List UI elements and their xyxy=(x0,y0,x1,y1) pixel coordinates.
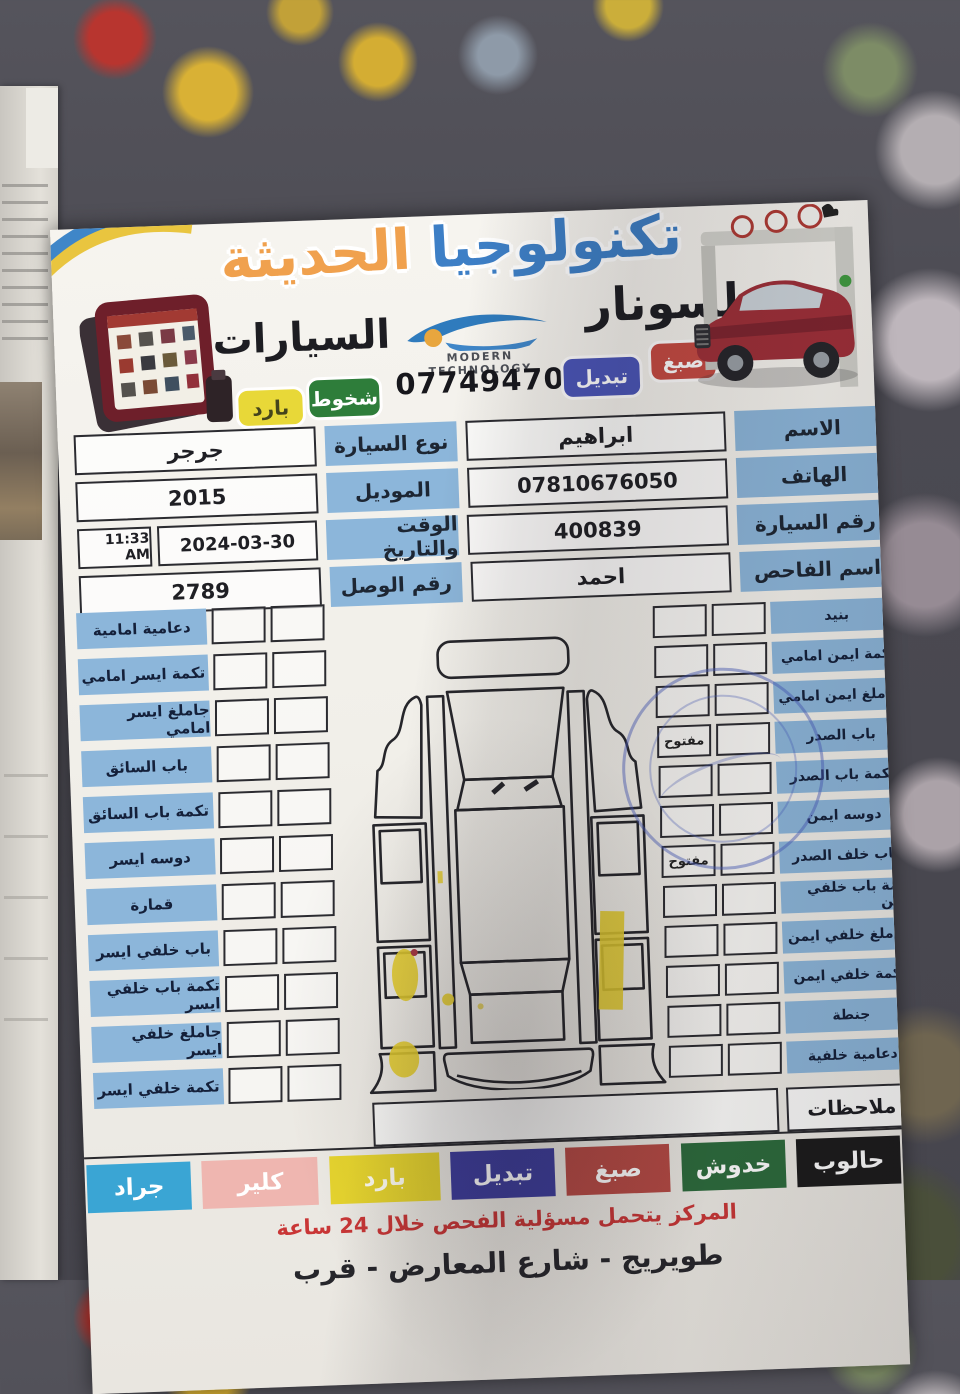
checklist-row: جاملغ خلفي ايمن xyxy=(664,917,910,958)
inspector-label: اسم الفاحص xyxy=(739,546,895,592)
condition-box xyxy=(213,652,267,690)
car-type-label: نوع السيارة xyxy=(325,421,458,466)
condition-box: مفتوح xyxy=(662,844,716,878)
condition-box xyxy=(660,804,714,838)
condition-box xyxy=(282,926,336,964)
condition-box xyxy=(718,762,772,796)
time-value: 11:33 AM xyxy=(77,527,152,570)
condition-box xyxy=(653,604,707,638)
checklist-row: تكمة باب السائق xyxy=(83,788,332,833)
condition-box xyxy=(281,880,335,918)
datetime-values: 2024-03-30 11:33 AM xyxy=(77,520,318,569)
part-name-label: تكمة باب السائق xyxy=(83,792,214,833)
service-badge: تبديل xyxy=(563,357,640,398)
checklist-row: جاملغ ايسر امامي xyxy=(79,696,328,741)
car-swoosh-icon xyxy=(398,303,560,353)
condition-box xyxy=(656,684,710,718)
part-name-label: تكمة باب خلفي ايمن xyxy=(780,877,910,914)
part-name-label: تكمة خلفي ايسر xyxy=(93,1068,224,1109)
checklist-right-column: بنيد تكمة ايمن امامي جاملغ ايمن امامي مف… xyxy=(652,597,910,1078)
condition-box xyxy=(286,1018,340,1056)
part-name-label: قمارة xyxy=(86,884,217,925)
part-name-label: جاملغ خلفي ايمن xyxy=(782,917,910,954)
paper-row-marks xyxy=(4,716,48,1046)
condition-box xyxy=(272,650,326,688)
legend-item: حالوب xyxy=(796,1135,902,1187)
checklist-row: جاملغ ايمن امامي xyxy=(655,677,906,718)
part-name-label: باب السائق xyxy=(81,746,212,787)
part-name-label: جنطة xyxy=(785,997,910,1034)
condition-box xyxy=(719,802,773,836)
checklist-row: دعامية امامية xyxy=(76,604,325,649)
condition-box xyxy=(728,1042,782,1076)
condition-box xyxy=(723,922,777,956)
condition-box xyxy=(222,882,276,920)
condition-box xyxy=(223,928,277,966)
condition-box xyxy=(220,836,274,874)
checklist-row: باب السائق xyxy=(81,742,330,787)
part-name-label: دوسه ايسر xyxy=(84,838,215,879)
condition-box xyxy=(722,882,776,916)
condition-box xyxy=(713,642,767,676)
checklist-row: دوسه ايمن xyxy=(660,797,911,838)
condition-box xyxy=(716,722,770,756)
condition-box xyxy=(664,924,718,958)
part-name-label: تكمة خلفي ايمن xyxy=(783,957,910,994)
notes-label: ملاحظات xyxy=(786,1083,910,1132)
checklist-row: مفتوح باب الصدر xyxy=(657,717,908,758)
date-value: 2024-03-30 xyxy=(157,520,318,566)
model-label: الموديل xyxy=(327,468,460,513)
condition-box xyxy=(666,964,720,998)
disclaimer-text: المركز يتحمل مسؤلية الفحص خلال 24 ساعة xyxy=(262,1199,751,1241)
condition-box xyxy=(663,884,717,918)
checklist-row: تكمة ايمن امامي xyxy=(654,637,905,678)
checklist-row: جاملغ خلفي ايسر xyxy=(91,1018,340,1063)
condition-box xyxy=(228,1066,282,1104)
part-name-label: جاملغ ايسر امامي xyxy=(79,700,210,741)
car-number-value: 400839 xyxy=(466,505,729,555)
condition-box xyxy=(712,602,766,636)
condition-box xyxy=(271,604,325,642)
phone-label: الهاتف xyxy=(736,452,892,498)
car-outline-diagram xyxy=(348,626,672,1095)
condition-box xyxy=(279,834,333,872)
part-name-label: باب الصدر xyxy=(775,717,908,754)
inspection-form-sheet: تكنولوجيا الحديثة لسونار السيارات MODERN… xyxy=(50,200,910,1394)
part-name-label: تكمة ايسر امامي xyxy=(78,655,209,696)
legend-item: جراد xyxy=(86,1161,192,1213)
legend-item: بارد xyxy=(329,1152,441,1204)
name-value: ابراهيم xyxy=(465,411,727,461)
legend-item: صبغ xyxy=(565,1144,671,1196)
checklist-row: دعامية خلفية xyxy=(668,1037,910,1078)
legend-item: تبديل xyxy=(450,1148,556,1200)
part-name-label: دعامية خلفية xyxy=(786,1037,910,1074)
condition-box xyxy=(277,788,331,826)
checklist-row: جنطة xyxy=(667,997,910,1038)
condition-box xyxy=(215,698,269,736)
checklist-left-column: دعامية امامية تكمة ايسر امامي جاملغ ايسر… xyxy=(76,604,342,1109)
notes-value-box xyxy=(372,1088,779,1147)
condition-box xyxy=(284,972,338,1010)
condition-box xyxy=(669,1044,723,1078)
title-word-technology: تكنولوجيا xyxy=(428,203,683,282)
part-name-label: تكمة باب الصدر xyxy=(776,757,909,794)
condition-box xyxy=(715,682,769,716)
legend-item: خدوش xyxy=(681,1140,787,1192)
checklist-row: باب خلفي ايسر xyxy=(88,926,337,971)
part-name-label: دعامية امامية xyxy=(76,609,207,650)
model-value: 2015 xyxy=(75,473,319,522)
service-badge: شخوط xyxy=(309,378,380,418)
condition-box xyxy=(725,962,779,996)
part-name-label: بنيد xyxy=(770,597,903,634)
condition-box xyxy=(227,1020,281,1058)
phone-value: 07810676050 xyxy=(467,458,729,508)
paper-strip xyxy=(26,88,58,168)
condition-box xyxy=(276,742,330,780)
side-paper-stack xyxy=(0,86,58,1280)
checklist-row: تكمة ايسر امامي xyxy=(78,650,327,695)
condition-box xyxy=(667,1004,721,1038)
vehicle-info-grid: الاسم ابراهيم نوع السيارة جرجر الهاتف 07… xyxy=(74,405,896,623)
checklist-row: تكمة باب خلفي ايسر xyxy=(90,972,339,1017)
checklist-row: تكمة باب الصدر xyxy=(658,757,909,798)
service-badge: بارد xyxy=(238,389,303,426)
condition-box xyxy=(287,1064,341,1102)
paper-text-marks xyxy=(2,170,48,342)
condition-box xyxy=(721,842,775,876)
address-text: طويريج - شارع المعارض - قرب xyxy=(248,1236,769,1288)
car-number-label: رقم السيارة xyxy=(737,499,894,545)
checklist-row: تكمة خلفي ايمن xyxy=(665,957,910,998)
part-name-label: باب خلف الصدر xyxy=(779,837,910,874)
name-label: الاسم xyxy=(734,405,890,451)
condition-box xyxy=(274,696,328,734)
part-name-label: جاملغ ايمن امامي xyxy=(773,677,906,714)
part-name-label: تكمة ايمن امامي xyxy=(772,637,905,674)
condition-box: مفتوح xyxy=(657,724,711,758)
condition-box xyxy=(217,744,271,782)
checklist-row: تكمة خلفي ايسر xyxy=(93,1064,342,1109)
checklist-row: دوسه ايسر xyxy=(84,834,333,879)
condition-color-legend: حالوب خدوش صبغ تبديل بارد كلير جراد xyxy=(86,1135,901,1213)
inspector-value: احمد xyxy=(470,552,732,602)
car-type-value: جرجر xyxy=(74,426,318,475)
part-name-label: تكمة باب خلفي ايسر xyxy=(90,976,221,1017)
part-name-label: باب خلفي ايسر xyxy=(88,930,219,971)
checklist-row: بنيد xyxy=(652,597,903,638)
condition-box xyxy=(726,1002,780,1036)
checklist-row: مفتوح باب خلف الصدر xyxy=(661,837,910,878)
condition-box xyxy=(659,764,713,798)
condition-box xyxy=(225,974,279,1012)
part-name-label: جاملغ خلفي ايسر xyxy=(91,1022,222,1063)
condition-box xyxy=(654,644,708,678)
legend-item: كلير xyxy=(202,1157,320,1209)
checklist-row: تكمة باب خلفي ايمن xyxy=(662,877,910,918)
condition-box xyxy=(212,606,266,644)
paper-photo-fragment xyxy=(0,382,42,540)
brand-cars: السيارات xyxy=(229,312,391,364)
title-word-modern: الحديثة xyxy=(218,218,412,293)
suv-scanner-image xyxy=(676,202,881,409)
datetime-label: الوقت والتاريخ xyxy=(326,515,459,560)
part-name-label: دوسه ايمن xyxy=(777,797,910,834)
condition-box xyxy=(218,790,272,828)
checklist-row: قمارة xyxy=(86,880,335,925)
diagnostic-tablet-image xyxy=(78,283,235,436)
receipt-label: رقم الوصل xyxy=(330,562,463,607)
